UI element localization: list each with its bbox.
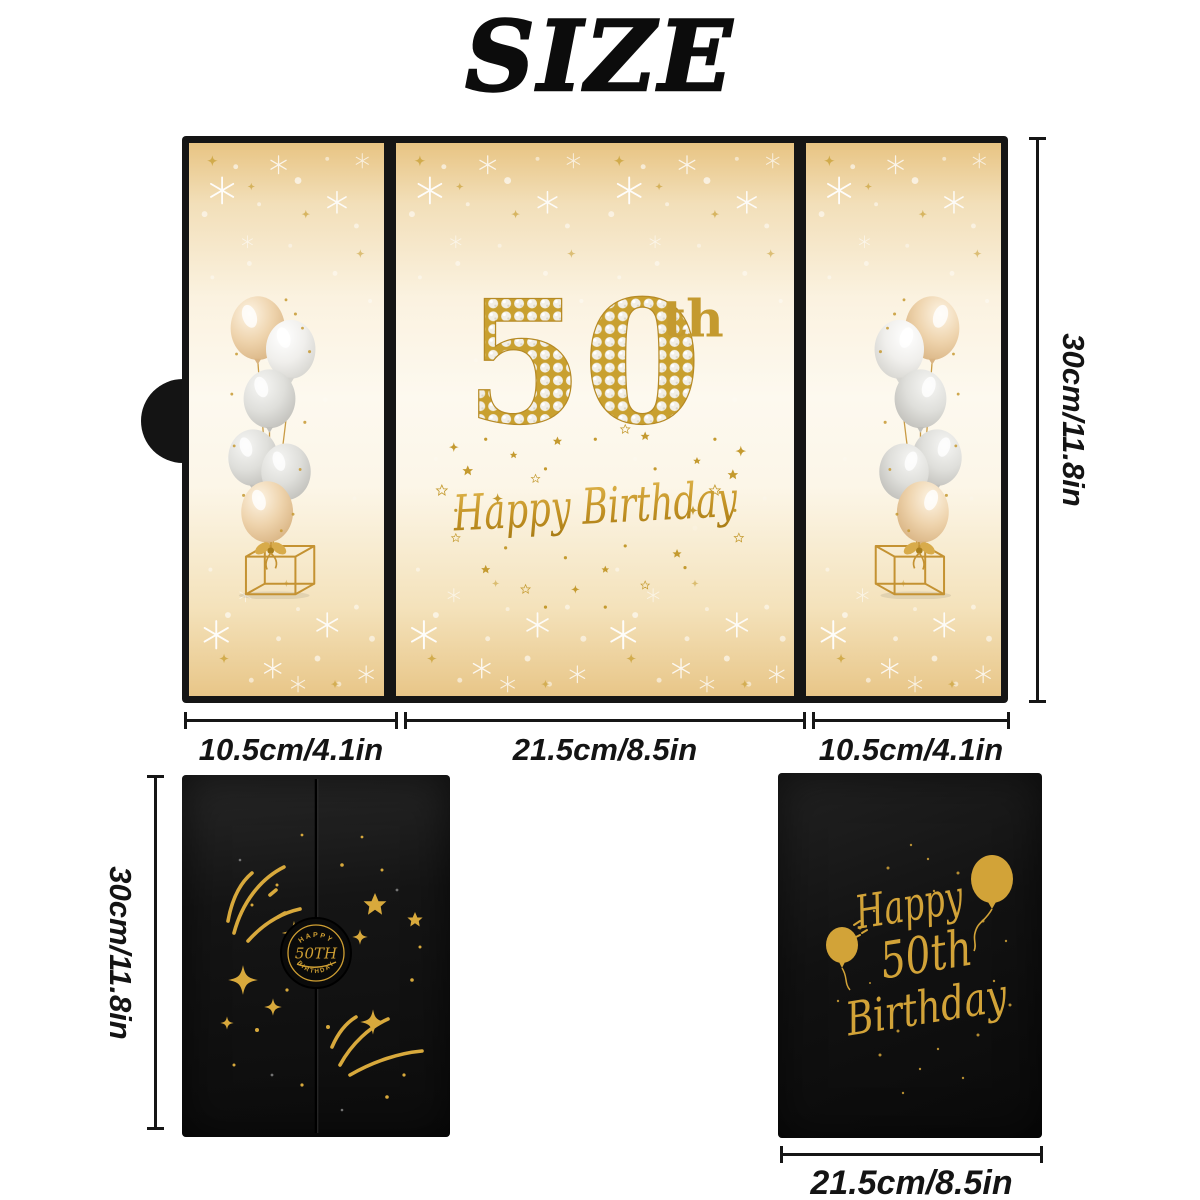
closed-card-back: Happy 50th Birthday (778, 773, 1042, 1138)
open-card-height-dimension: 30cm/11.8in (1029, 137, 1046, 703)
right-panel-width-label: 10.5cm/4.1in (812, 732, 1010, 768)
back-card-width-dimension: 21.5cm/8.5in (780, 1146, 1043, 1163)
back-artwork: Happy 50th Birthday (778, 773, 1042, 1138)
number-suffix: th (662, 290, 724, 350)
center-artwork: 50 th Happy Birthday (396, 143, 795, 696)
left-panel-width-label: 10.5cm/4.1in (184, 732, 398, 768)
balloon-bouquet-icon (215, 281, 357, 599)
back-card-width-label: 21.5cm/8.5in (780, 1164, 1043, 1200)
firework-burst-icon (332, 1017, 422, 1075)
center-panel-width-dimension: 21.5cm/8.5in (404, 712, 806, 729)
open-card-height-label: 30cm/11.8in (1055, 333, 1091, 506)
center-panel-width-label: 21.5cm/8.5in (404, 732, 806, 768)
front-card-height-label: 30cm/11.8in (102, 866, 138, 1039)
back-line3: Birthday (841, 968, 1011, 1047)
page-title: SIZE (0, 0, 1200, 113)
front-card-height-dimension: 30cm/11.8in (147, 775, 164, 1130)
closed-card-front: HAPPY BIRTHDAY 50TH (182, 775, 450, 1137)
size-diagram: SIZE 50 th Happy Birthday (0, 0, 1200, 1200)
left-panel-width-dimension: 10.5cm/4.1in (184, 712, 398, 729)
greeting-script: Happy Birthday (451, 470, 739, 542)
open-card-left-panel (189, 143, 384, 696)
badge-seal-icon: HAPPY BIRTHDAY 50TH (281, 918, 351, 988)
open-card-center-panel: 50 th Happy Birthday (396, 143, 795, 696)
open-card: 50 th Happy Birthday (182, 136, 1008, 703)
fireworks-artwork: HAPPY BIRTHDAY 50TH (182, 775, 450, 1137)
right-panel-width-dimension: 10.5cm/4.1in (812, 712, 1010, 729)
open-card-right-panel (806, 143, 1001, 696)
balloon-bouquet-icon (833, 281, 975, 599)
badge-middle-text: 50TH (295, 945, 338, 963)
